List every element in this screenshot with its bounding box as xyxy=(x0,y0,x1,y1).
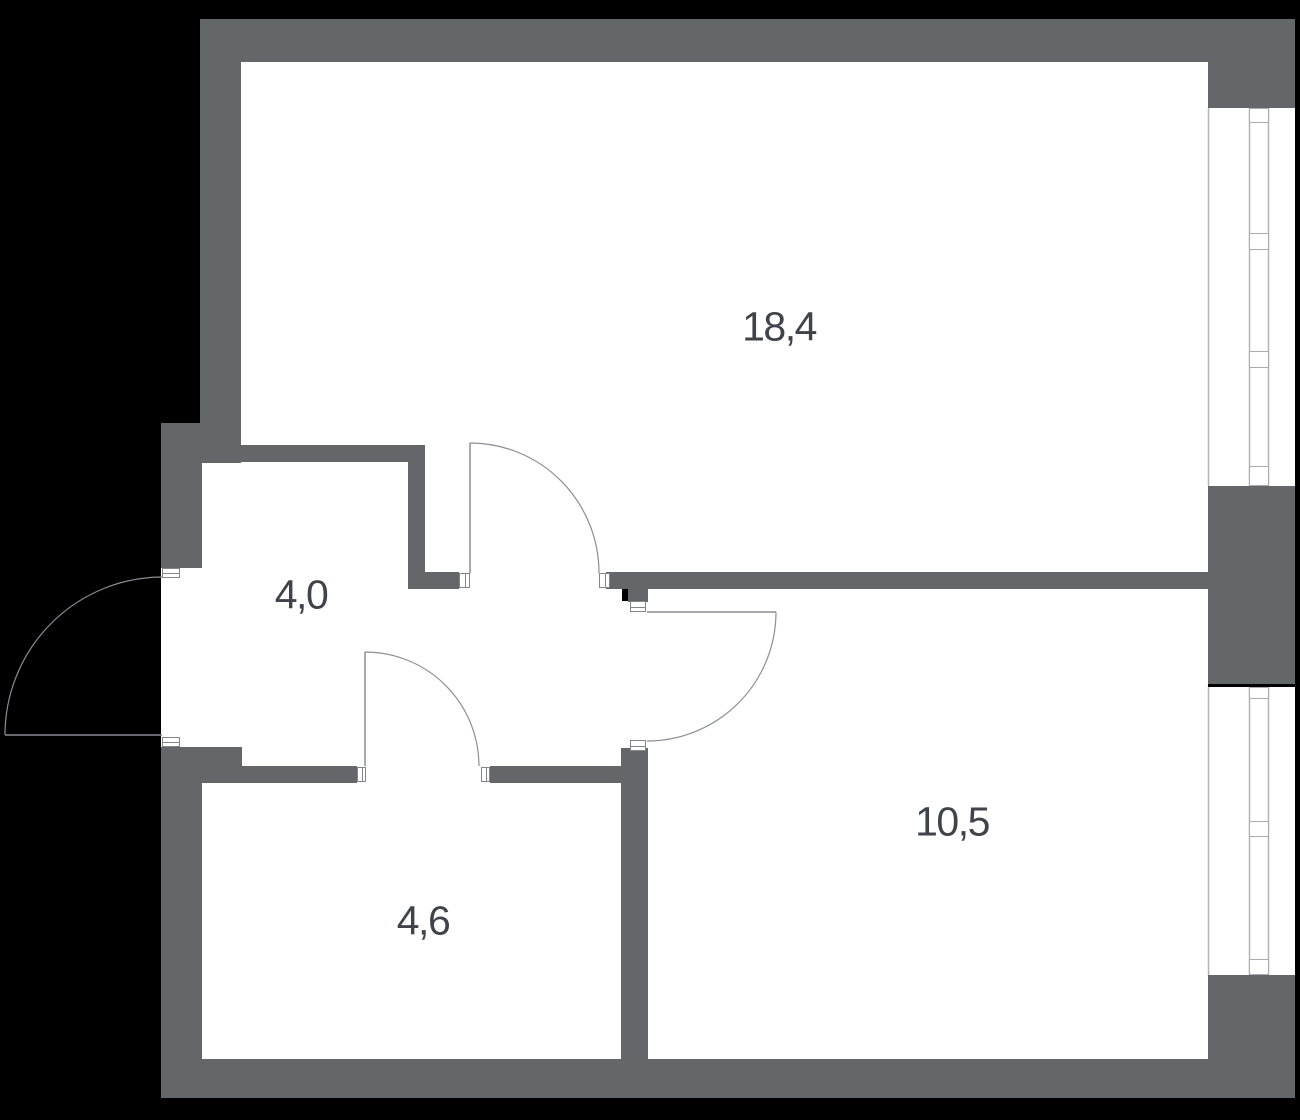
wall-segment xyxy=(200,445,423,462)
door-jamb xyxy=(630,740,646,751)
door-jamb xyxy=(481,767,490,782)
door-jamb xyxy=(599,573,610,588)
door-swing-arc xyxy=(470,443,599,573)
room-area-label-18-4: 18,4 xyxy=(742,304,816,351)
door-jamb xyxy=(162,737,180,747)
wall-segment xyxy=(621,748,648,1059)
wall-segment xyxy=(202,747,242,766)
window-transom xyxy=(1249,466,1269,486)
wall-segment xyxy=(161,423,202,568)
door-jamb xyxy=(357,767,366,782)
wall-segment xyxy=(408,572,459,589)
wall-segment xyxy=(606,572,1208,589)
window-transom xyxy=(1249,821,1269,837)
window-transom xyxy=(1249,108,1269,123)
wall-segment xyxy=(408,445,425,572)
wall-segment xyxy=(161,747,202,1059)
window-transom xyxy=(1249,351,1269,368)
wall-segment xyxy=(200,19,241,463)
wall-segment xyxy=(490,766,622,783)
floor-plan-canvas: 18,4 4,0 4,6 10,5 xyxy=(0,0,1300,1120)
wall-segment xyxy=(161,1059,1208,1098)
room-area-label-4-6: 4,6 xyxy=(397,898,450,945)
door-jamb xyxy=(630,601,646,612)
door-jamb xyxy=(459,573,470,588)
room-area-label-10-5: 10,5 xyxy=(915,799,989,846)
room-area-label-4-0: 4,0 xyxy=(275,572,328,619)
door-jamb xyxy=(162,568,180,578)
wall-segment xyxy=(1208,975,1295,1098)
door-swing-arc xyxy=(647,612,776,741)
door-swing-arc xyxy=(5,577,162,735)
wall-segment xyxy=(200,19,1295,62)
wall-segment xyxy=(1208,62,1295,108)
floor-plan: 18,4 4,0 4,6 10,5 xyxy=(0,0,1300,1120)
wall-segment xyxy=(1208,486,1295,684)
window-transom xyxy=(1249,687,1269,699)
window-transom xyxy=(1249,959,1269,975)
wall-segment xyxy=(202,766,357,783)
window-transom xyxy=(1249,233,1269,250)
door-swing-arc xyxy=(365,652,479,766)
